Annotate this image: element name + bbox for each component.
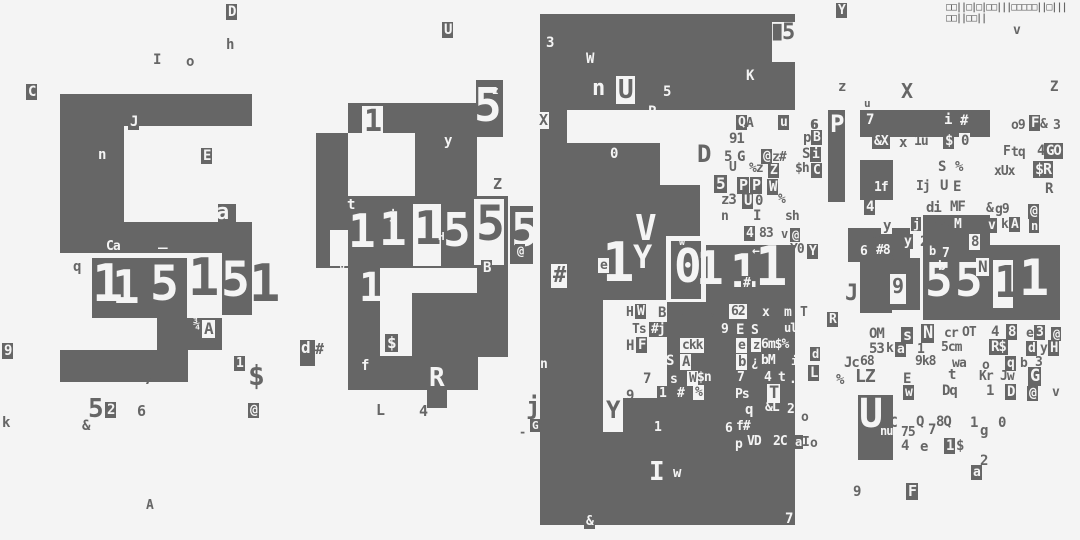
glyph: o [810, 437, 817, 450]
glyph: & [1040, 118, 1047, 131]
glyph: 8 [1006, 324, 1017, 340]
glyph: n [1029, 219, 1039, 233]
glyph: 5 [925, 257, 952, 303]
glyph: cr [944, 327, 958, 340]
glyph: v [1052, 386, 1059, 399]
glyph: 8 [969, 234, 980, 250]
glyph: 5 [1005, 180, 1012, 194]
glyph: MF [948, 199, 967, 215]
glyph: 8 [1020, 179, 1027, 193]
glyph: xUx [994, 165, 1014, 178]
glyph: L [808, 365, 819, 381]
glyph: 6 [860, 245, 867, 258]
glyph: Dq [942, 384, 957, 398]
ink-block [860, 300, 892, 313]
glyph: % [836, 373, 843, 387]
glyph: o9 [1009, 118, 1027, 133]
glyph: v [986, 218, 997, 233]
glyph: R [1045, 182, 1052, 196]
glyph: 1f [874, 181, 888, 194]
glyph: 8Q [936, 415, 951, 429]
glyph: e [920, 440, 927, 454]
glyph: d [1026, 341, 1037, 356]
glyph: j [911, 217, 921, 231]
glyph: a [959, 357, 966, 370]
glyph: U [940, 179, 947, 193]
glyph: 4 [864, 199, 875, 215]
glyph: U [859, 394, 882, 434]
glyph: $ [943, 133, 954, 149]
glyph: U [864, 149, 871, 162]
glyph: #8 [876, 244, 890, 257]
glyph: # [960, 114, 967, 128]
glyph: J [845, 283, 857, 305]
glyph: k [1001, 218, 1008, 231]
glyph: E [953, 180, 960, 194]
glyph: 4 [901, 439, 908, 453]
glyph: P [830, 112, 843, 136]
glyph: 1 [994, 261, 1020, 305]
glyph: nu [880, 425, 892, 437]
glyph: i [944, 113, 951, 127]
glyph: a [971, 465, 982, 480]
glyph: Jw [1000, 370, 1014, 383]
glyph: 9k8 [913, 354, 937, 369]
glyph: $R [1033, 161, 1053, 178]
glyph: 4 [991, 325, 998, 339]
glyph: F [1029, 115, 1040, 131]
glyph: H [1048, 340, 1059, 356]
glyph: R$ [989, 339, 1008, 355]
glyph: OT [960, 325, 978, 340]
glyph: t [948, 368, 955, 382]
glyph: M [952, 217, 963, 232]
glyph: 9 [853, 485, 860, 499]
glyph: 0 [996, 415, 1007, 431]
glyph: @ [1028, 204, 1039, 219]
ink-block [860, 110, 990, 137]
glyph: a [895, 342, 906, 357]
glyph: 1u [914, 135, 928, 148]
glyph: y [881, 218, 892, 234]
glyph: R [827, 312, 838, 327]
glyph: y [902, 234, 913, 249]
glyph: k [886, 342, 893, 355]
glyph: S [938, 160, 945, 174]
glyph: z [838, 80, 845, 94]
glyph: D [1005, 384, 1016, 400]
glyph: 9 [892, 276, 903, 296]
glyph: &% [934, 218, 948, 231]
glyph: % [953, 159, 964, 175]
glyph: x [899, 136, 906, 150]
glyph: 3 [1053, 119, 1060, 132]
glyph: X [901, 81, 912, 101]
glyph: @ [1027, 386, 1038, 401]
glyph: e [1026, 327, 1033, 340]
glyph: OM [869, 327, 884, 341]
glyph: & [986, 202, 993, 215]
glyph: N [921, 324, 934, 343]
glyph: b [1020, 357, 1027, 370]
glyph: 1 [944, 438, 955, 454]
glyph: y [1040, 342, 1047, 355]
glyph: 5 [955, 257, 982, 303]
glyph: g9 [995, 203, 1009, 216]
glitch-figure-4: YvzXZ6Pu7i#o9F&3&Xx1u$0Ftq4GOUS%xUx$R1fI… [0, 0, 1080, 540]
glyph: Y [836, 3, 847, 18]
glyph: &X [872, 134, 890, 149]
glyph: Z [1050, 80, 1057, 94]
glyph: @ [1051, 327, 1061, 341]
glyph: F [906, 483, 918, 500]
glyph: v [1013, 24, 1020, 37]
glyph: 7 [928, 423, 935, 437]
glyph: $ [956, 439, 963, 453]
glyph: Ij [916, 180, 930, 193]
glyph: 7 [866, 113, 873, 127]
glyph: g [980, 424, 987, 438]
glyph: 1 [986, 384, 993, 398]
glyph: 1 [1019, 253, 1048, 303]
glyph: d [810, 347, 820, 361]
glyph: S [1052, 257, 1059, 271]
glyph: Kr [979, 370, 993, 383]
glyph: 6 [810, 119, 817, 132]
glyph: tq [1011, 146, 1025, 159]
glitch-collage: □□||□|□|□□|||□□□□□||□|||□□||□□|| DhIoCJn… [0, 0, 1080, 540]
glyph: GO [1044, 143, 1063, 159]
glyph: 1 [970, 416, 977, 430]
glyph: G [1028, 367, 1041, 386]
glyph: 3 [1034, 325, 1045, 340]
glyph: di [926, 201, 941, 215]
glyph: u [864, 98, 870, 109]
glyph: w [903, 385, 914, 400]
glyph: LZ [855, 368, 875, 386]
glyph: E [903, 372, 910, 386]
glyph: 0 [959, 133, 970, 149]
glyph: 5cm [941, 341, 961, 354]
glyph: A [1009, 217, 1020, 232]
glyph: F [1003, 145, 1010, 158]
glyph: Q [916, 415, 923, 429]
